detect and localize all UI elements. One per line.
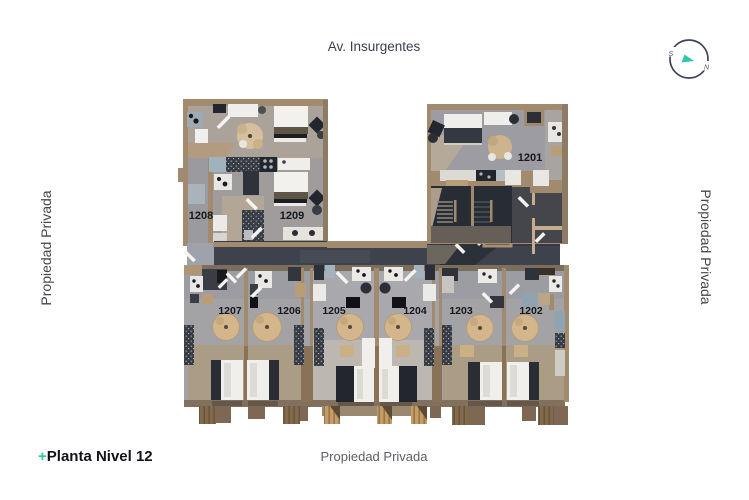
- svg-text:S: S: [669, 51, 674, 58]
- svg-text:1204: 1204: [403, 305, 427, 317]
- svg-text:1205: 1205: [322, 305, 346, 317]
- svg-text:+Planta Nivel 12: +Planta Nivel 12: [38, 448, 153, 465]
- svg-text:1208: 1208: [189, 210, 213, 222]
- svg-text:1201: 1201: [518, 152, 542, 164]
- svg-text:Propiedad Privada: Propiedad Privada: [38, 190, 54, 305]
- svg-text:Propiedad Privada: Propiedad Privada: [321, 449, 429, 464]
- svg-text:1207: 1207: [218, 305, 242, 317]
- svg-text:Av. Insurgentes: Av. Insurgentes: [328, 39, 421, 54]
- svg-text:1203: 1203: [449, 305, 473, 317]
- svg-text:1209: 1209: [280, 210, 304, 222]
- svg-text:1202: 1202: [519, 305, 543, 317]
- svg-text:Propiedad Privada: Propiedad Privada: [698, 189, 714, 304]
- svg-text:1206: 1206: [277, 305, 301, 317]
